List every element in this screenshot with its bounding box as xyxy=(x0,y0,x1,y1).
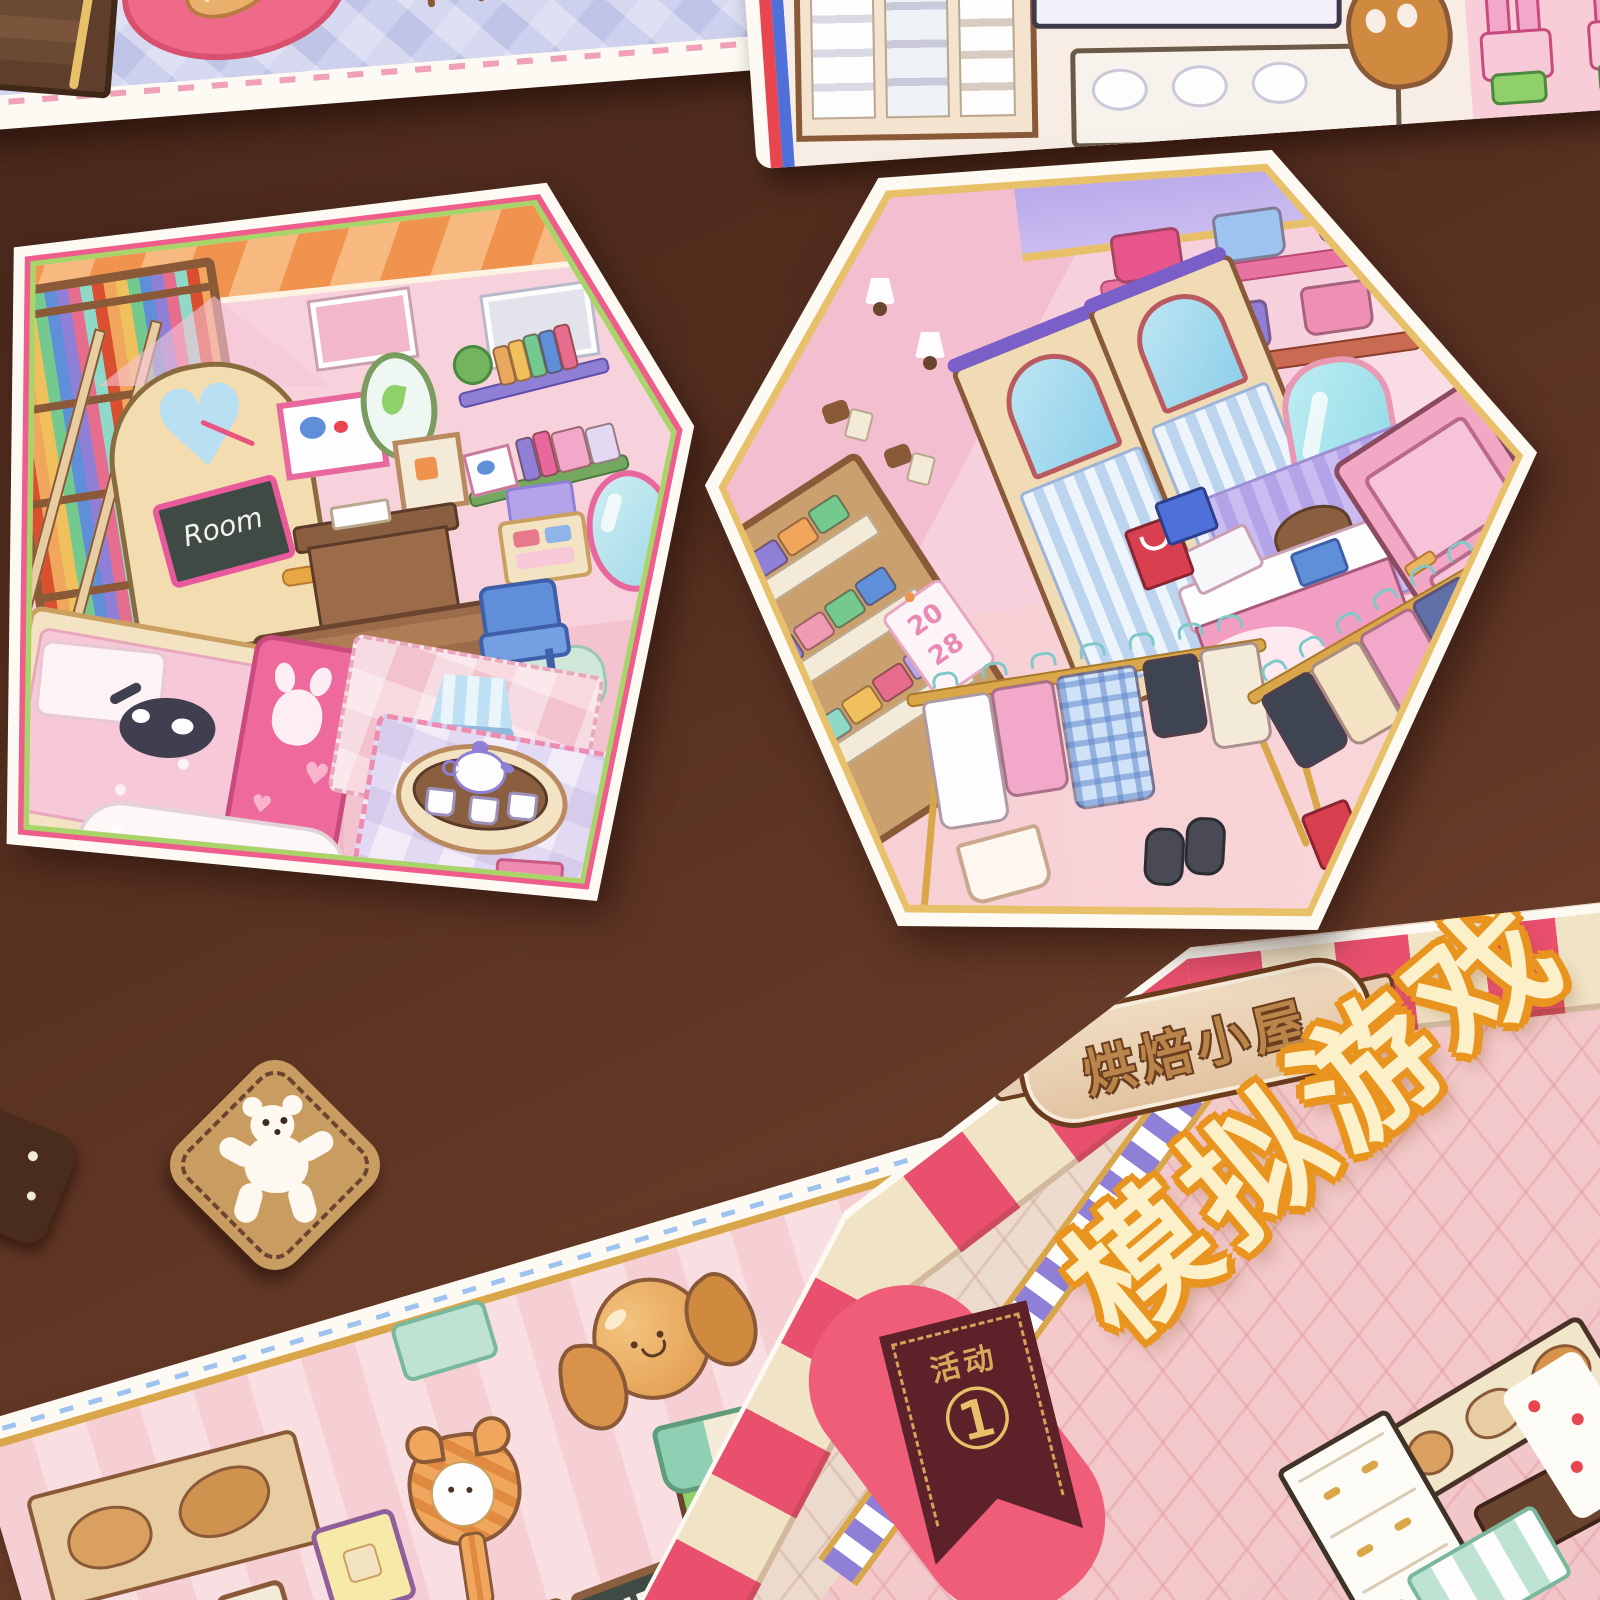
clothing-shop-panel: 20 28 xyxy=(693,138,1543,938)
bunny-back-chair-icon xyxy=(1476,0,1554,108)
chocolate-cookie-token xyxy=(0,1102,83,1250)
door-sign-text: Room xyxy=(163,496,284,558)
bunny-back-chair-icon xyxy=(1584,0,1600,97)
chocolate-cookie-icon xyxy=(26,1150,39,1163)
croissant-icon xyxy=(60,1497,159,1578)
bread-icon xyxy=(173,0,292,33)
shopper-bag-icon xyxy=(955,823,1055,907)
clock-icon xyxy=(1408,202,1517,328)
croissant-icon xyxy=(167,1452,281,1552)
bear-cookie-token xyxy=(158,1048,393,1283)
cafe-corner-panel xyxy=(0,0,804,131)
dress-plaid xyxy=(1055,664,1157,811)
shoes-icon xyxy=(1143,827,1186,887)
shoes-icon xyxy=(1184,816,1227,876)
coat-hook-icon xyxy=(885,440,935,484)
photo-flatlay: MENU xyxy=(0,0,1600,1600)
counter-icon xyxy=(0,0,125,99)
mini-drawers xyxy=(497,510,593,588)
tea-table-icon xyxy=(389,736,567,879)
picture-frame xyxy=(214,1578,306,1600)
heart-window-icon: ♥ xyxy=(141,374,265,485)
wall-shelf xyxy=(445,307,607,411)
book-item xyxy=(290,877,364,896)
tea-cup-icon xyxy=(467,795,500,826)
cat-mirror-icon xyxy=(401,1425,536,1600)
bedroom-interior: ♥ Room xyxy=(9,184,681,896)
picture-frame xyxy=(309,1507,418,1600)
tea-cup-icon xyxy=(424,787,457,818)
dining-table xyxy=(1032,0,1342,29)
plate-shelf-icon xyxy=(792,0,1039,142)
plant-icon xyxy=(449,341,497,389)
coat-hook-icon xyxy=(823,396,873,440)
teddy-bear-cookie-icon xyxy=(216,1105,336,1225)
wall-lamp-icon xyxy=(861,278,905,318)
bunny-wall xyxy=(1452,0,1600,119)
bedroom-study-panel: ♥ Room xyxy=(0,160,705,920)
bread-tray-icon xyxy=(25,1428,324,1600)
tea-cup-icon xyxy=(506,791,539,822)
top-black xyxy=(1141,652,1209,740)
